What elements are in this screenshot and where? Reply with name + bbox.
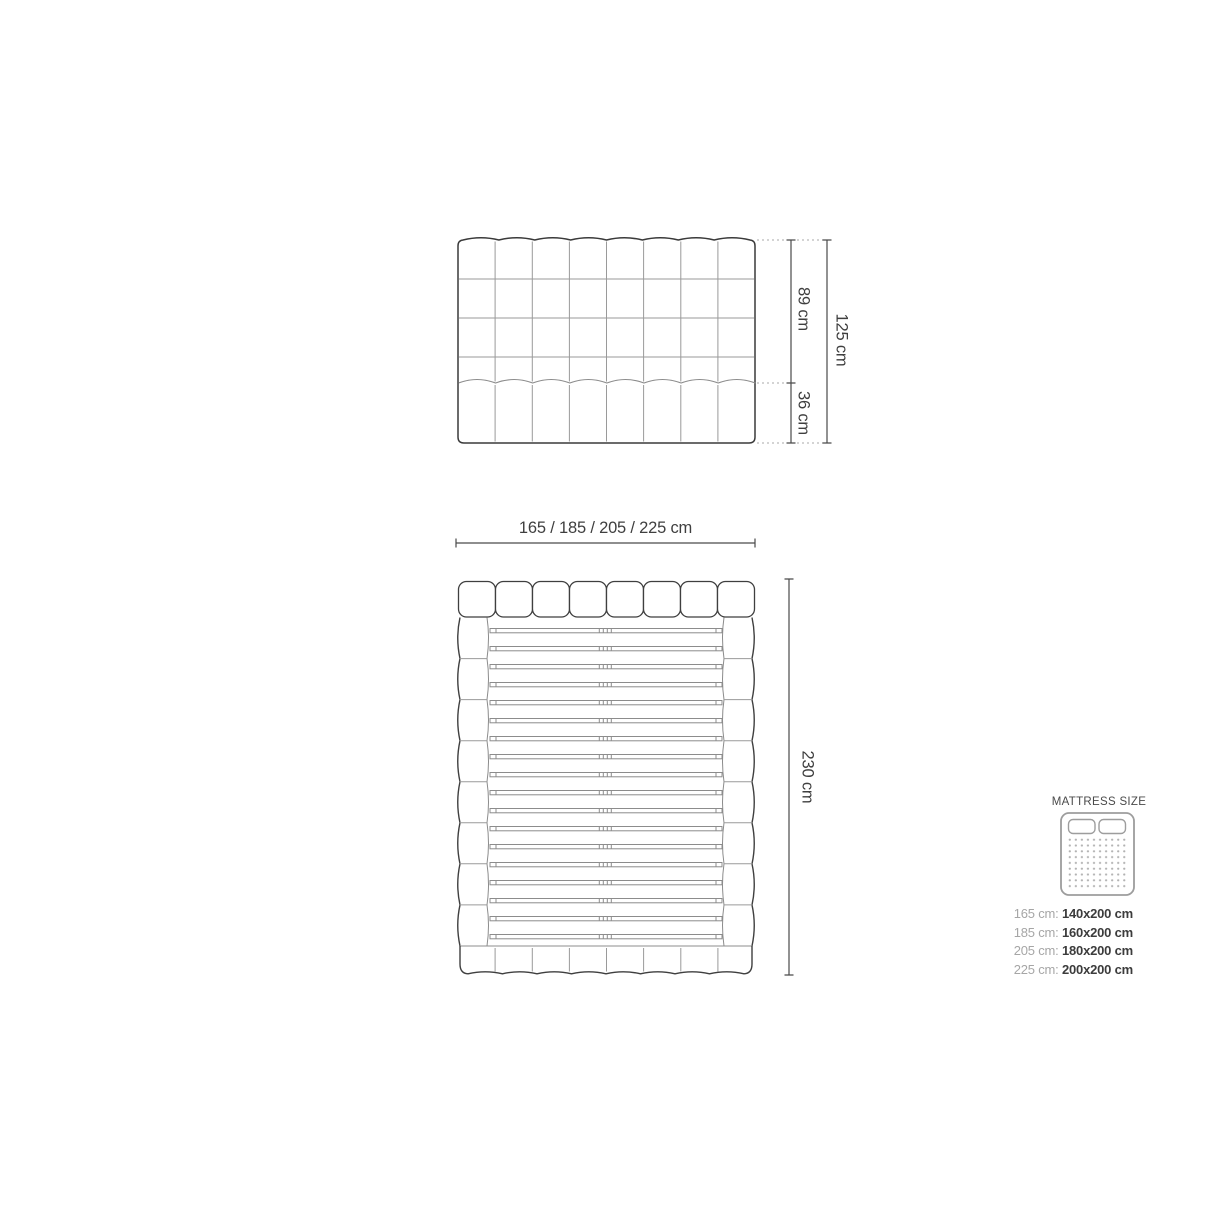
legend-row-value: 200x200 cm xyxy=(1062,962,1133,977)
footboard-dividers xyxy=(495,948,718,972)
legend-row-label: 225 cm: xyxy=(1014,962,1059,977)
legend-row: 165 cm: 140x200 cm xyxy=(1003,905,1133,924)
right-rail-outer-edge xyxy=(752,618,754,946)
dim-label-lower-height: 36 cm xyxy=(794,391,813,435)
left-rail-inner-edge xyxy=(487,618,489,946)
dim-label-widths: 165 / 185 / 205 / 225 cm xyxy=(456,519,755,538)
legend-row: 225 cm: 200x200 cm xyxy=(1003,961,1133,980)
legend-row-value: 140x200 cm xyxy=(1062,906,1133,921)
pillow-left xyxy=(1069,820,1096,834)
front-view-drawing xyxy=(458,238,832,443)
dim-label-total-height: 125 cm xyxy=(832,314,851,367)
diagram-linework xyxy=(0,0,1214,1214)
mattress-dots xyxy=(1068,838,1128,891)
legend-row-value: 160x200 cm xyxy=(1062,925,1133,940)
headboard-top-row xyxy=(459,582,755,618)
dim-label-upper-height: 89 cm xyxy=(794,287,813,331)
mattress-icon xyxy=(1061,813,1134,895)
legend-title: MATTRESS SIZE xyxy=(1040,796,1158,808)
legend-row: 185 cm: 160x200 cm xyxy=(1003,924,1133,943)
right-rail-inner-edge xyxy=(723,618,725,946)
legend-row-label: 165 cm: xyxy=(1014,906,1059,921)
legend-row-value: 180x200 cm xyxy=(1062,943,1133,958)
pillow-right xyxy=(1099,820,1126,834)
mattress-size-legend: 165 cm: 140x200 cm 185 cm: 160x200 cm 20… xyxy=(1003,905,1133,979)
left-rail-outer-edge xyxy=(458,618,460,946)
dim-label-length: 230 cm xyxy=(798,751,817,804)
legend-row: 205 cm: 180x200 cm xyxy=(1003,942,1133,961)
legend-row-label: 205 cm: xyxy=(1014,943,1059,958)
length-dimension-line xyxy=(785,579,794,975)
top-view-drawing xyxy=(456,539,794,976)
legend-row-label: 185 cm: xyxy=(1014,925,1059,940)
slat-deck xyxy=(490,629,722,939)
rail-segment-lines xyxy=(460,659,752,905)
bed-dimension-diagram: 165 / 185 / 205 / 225 cm 89 cm 36 cm 125… xyxy=(0,0,1214,1214)
width-dimension-line xyxy=(456,539,755,548)
